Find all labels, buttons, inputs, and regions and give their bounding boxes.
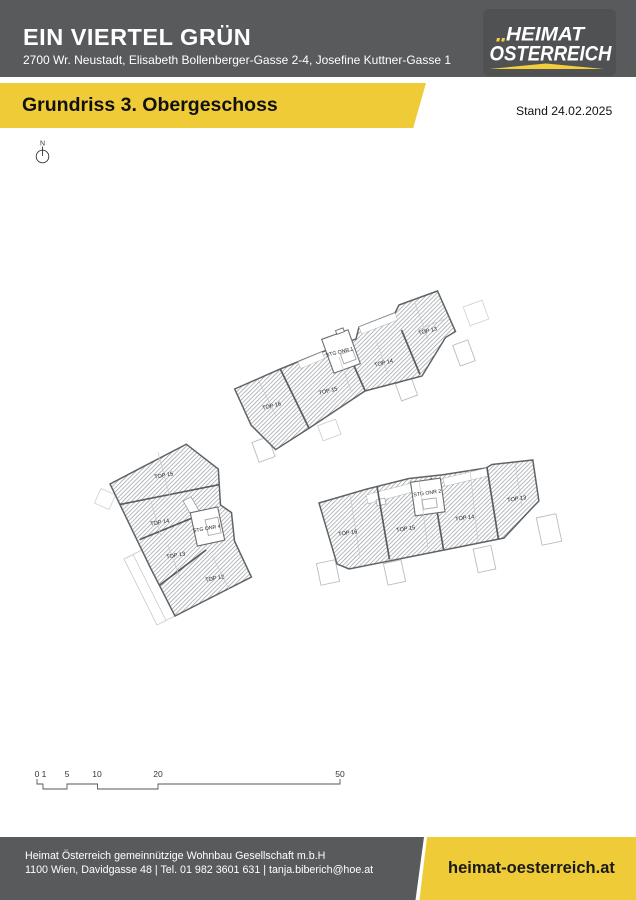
svg-text:OSTERREICH: OSTERREICH (490, 43, 613, 66)
svg-text:20: 20 (153, 769, 163, 779)
svg-text:10: 10 (92, 769, 102, 779)
svg-text:50: 50 (335, 769, 345, 779)
svg-text:5: 5 (65, 769, 70, 779)
svg-text:1: 1 (42, 769, 47, 779)
svg-text:0: 0 (35, 769, 40, 779)
svg-text:N: N (40, 141, 45, 148)
